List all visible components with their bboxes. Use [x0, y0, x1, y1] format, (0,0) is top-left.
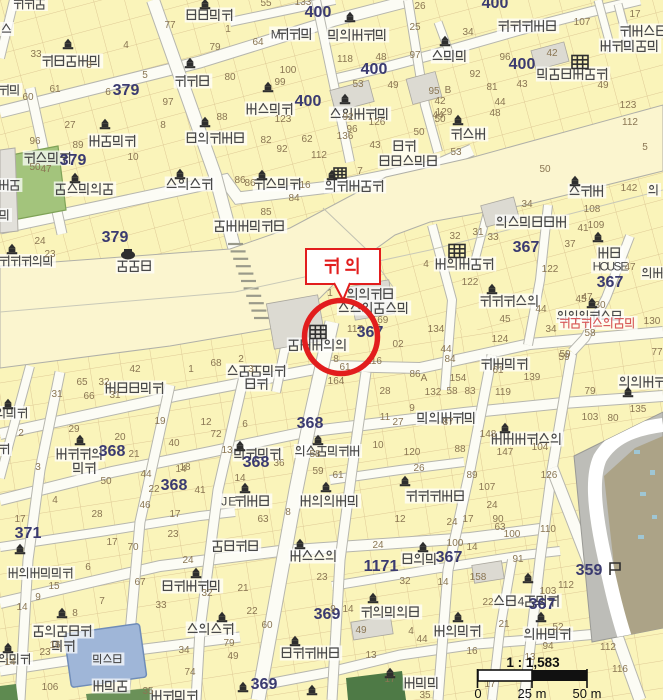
svg-text:84: 84	[288, 193, 300, 204]
svg-text:85: 85	[260, 207, 272, 218]
svg-text:58: 58	[446, 386, 458, 397]
svg-text:34: 34	[545, 324, 557, 335]
svg-text:58: 58	[584, 328, 596, 339]
svg-text:5: 5	[142, 70, 148, 81]
svg-text:80: 80	[607, 413, 619, 424]
svg-text:24: 24	[486, 500, 498, 511]
svg-text:6: 6	[85, 562, 91, 573]
svg-text:14: 14	[175, 464, 187, 475]
svg-text:1: 1	[225, 24, 231, 35]
svg-text:77: 77	[164, 20, 176, 31]
svg-text:136: 136	[337, 131, 354, 142]
svg-text:88: 88	[454, 444, 466, 455]
svg-text:369: 369	[314, 606, 341, 623]
svg-text:60: 60	[261, 620, 273, 631]
svg-text:1 : 1,583: 1 : 1,583	[506, 655, 560, 670]
svg-text:81: 81	[486, 82, 498, 93]
svg-text:62: 62	[301, 134, 313, 145]
svg-text:8: 8	[333, 354, 339, 365]
svg-text:116: 116	[612, 664, 628, 675]
svg-text:33: 33	[155, 600, 167, 611]
svg-text:74: 74	[184, 667, 196, 678]
svg-text:367: 367	[597, 274, 624, 291]
svg-text:8: 8	[160, 120, 166, 131]
svg-text:368: 368	[243, 454, 270, 471]
svg-text:48: 48	[489, 108, 501, 119]
svg-text:35: 35	[419, 690, 431, 700]
svg-text:77: 77	[651, 347, 663, 358]
svg-text:44: 44	[494, 97, 506, 108]
svg-text:17: 17	[462, 514, 474, 525]
svg-text:84: 84	[444, 354, 456, 365]
svg-text:368: 368	[297, 415, 324, 432]
svg-text:32: 32	[399, 576, 411, 587]
svg-text:48: 48	[375, 52, 387, 63]
svg-text:106: 106	[42, 682, 59, 693]
svg-text:400: 400	[509, 56, 536, 73]
svg-text:49: 49	[355, 625, 367, 636]
svg-text:22: 22	[482, 597, 494, 608]
svg-text:27: 27	[392, 417, 404, 428]
svg-text:120: 120	[404, 447, 421, 458]
svg-text:36: 36	[273, 458, 285, 469]
svg-text:132: 132	[425, 387, 442, 398]
svg-text:29: 29	[68, 424, 80, 435]
svg-text:104: 104	[532, 442, 549, 453]
svg-text:122: 122	[542, 264, 559, 275]
svg-text:400: 400	[482, 0, 509, 12]
svg-text:99: 99	[274, 77, 286, 88]
svg-text:14: 14	[466, 542, 478, 553]
svg-text:367: 367	[436, 549, 463, 566]
svg-text:3: 3	[248, 364, 254, 375]
svg-text:83: 83	[464, 386, 476, 397]
svg-text:1171: 1171	[364, 558, 399, 575]
svg-text:72: 72	[210, 429, 222, 440]
svg-text:53: 53	[352, 79, 364, 90]
svg-text:92: 92	[469, 69, 481, 80]
svg-text:1: 1	[188, 364, 194, 375]
svg-text:24: 24	[372, 540, 384, 551]
svg-text:24: 24	[34, 236, 46, 247]
svg-text:158: 158	[470, 572, 487, 583]
svg-text:33: 33	[30, 49, 42, 60]
svg-text:96: 96	[499, 52, 511, 63]
svg-text:10: 10	[127, 152, 139, 163]
svg-text:26: 26	[413, 463, 425, 474]
svg-text:92: 92	[276, 144, 288, 155]
svg-text:14: 14	[16, 602, 28, 613]
svg-text:112: 112	[600, 642, 616, 653]
svg-text:24: 24	[446, 517, 458, 528]
svg-text:4: 4	[423, 259, 429, 270]
svg-text:91: 91	[512, 554, 524, 565]
svg-text:21: 21	[498, 619, 510, 630]
svg-text:59: 59	[312, 466, 324, 477]
svg-text:61: 61	[492, 365, 504, 376]
svg-text:50: 50	[413, 127, 425, 138]
svg-text:369: 369	[251, 676, 278, 693]
svg-text:23: 23	[167, 529, 179, 540]
svg-text:24: 24	[182, 555, 194, 566]
svg-text:14: 14	[437, 577, 449, 588]
svg-text:379: 379	[102, 229, 129, 246]
svg-text:13: 13	[365, 650, 377, 661]
svg-text:35: 35	[142, 686, 154, 697]
svg-text:26: 26	[414, 1, 426, 12]
svg-text:15: 15	[48, 581, 60, 592]
svg-text:11: 11	[380, 412, 391, 423]
svg-text:4: 4	[408, 626, 414, 637]
svg-text:359: 359	[576, 562, 603, 579]
svg-text:50: 50	[100, 476, 112, 487]
svg-text:379: 379	[113, 82, 140, 99]
svg-text:9: 9	[409, 403, 415, 414]
svg-text:55: 55	[260, 0, 272, 9]
svg-text:8: 8	[285, 507, 291, 518]
svg-text:66: 66	[83, 391, 95, 402]
svg-text:49: 49	[227, 651, 239, 662]
svg-text:27: 27	[64, 120, 76, 131]
svg-text:107: 107	[574, 17, 591, 28]
svg-text:108: 108	[584, 204, 601, 215]
svg-text:21: 21	[237, 583, 249, 594]
svg-text:22: 22	[246, 606, 258, 617]
svg-text:50: 50	[29, 162, 41, 173]
svg-text:42: 42	[546, 48, 558, 59]
svg-text:63: 63	[257, 514, 269, 525]
svg-text:49: 49	[387, 80, 399, 91]
svg-text:1: 1	[327, 288, 333, 299]
svg-text:49: 49	[597, 80, 609, 91]
svg-text:80: 80	[224, 72, 236, 83]
svg-text:400: 400	[361, 61, 388, 78]
svg-text:63: 63	[494, 522, 506, 533]
svg-text:12: 12	[394, 514, 406, 525]
svg-text:10: 10	[372, 440, 384, 451]
svg-text:16: 16	[466, 646, 478, 657]
svg-text:28: 28	[379, 386, 391, 397]
svg-text:164: 164	[328, 376, 345, 387]
svg-text:20: 20	[114, 432, 126, 443]
svg-text:4: 4	[52, 495, 58, 506]
svg-text:0: 0	[474, 686, 481, 700]
svg-text:65: 65	[76, 377, 88, 388]
svg-text:3: 3	[86, 60, 92, 71]
svg-text:379: 379	[60, 152, 87, 169]
svg-text:122: 122	[462, 277, 479, 288]
svg-text:59: 59	[558, 352, 570, 363]
svg-text:6: 6	[242, 419, 248, 430]
svg-text:E: E	[228, 494, 236, 508]
svg-text:32: 32	[201, 588, 213, 599]
svg-text:42: 42	[434, 96, 446, 107]
svg-text:154: 154	[450, 373, 467, 384]
svg-text:17: 17	[106, 537, 118, 548]
svg-text:123: 123	[620, 100, 637, 111]
svg-text:94: 94	[542, 641, 554, 652]
svg-text:52: 52	[552, 622, 564, 633]
svg-text:42: 42	[129, 364, 141, 375]
svg-text:6: 6	[105, 87, 111, 98]
svg-text:32: 32	[98, 377, 110, 388]
svg-text:123: 123	[275, 114, 292, 125]
svg-text:45: 45	[499, 314, 511, 325]
svg-text:147: 147	[497, 447, 514, 458]
svg-text:16: 16	[299, 180, 311, 191]
svg-text:368: 368	[99, 443, 126, 460]
svg-text:3: 3	[35, 462, 41, 473]
svg-text:97: 97	[409, 50, 421, 61]
svg-text:14: 14	[234, 473, 246, 484]
svg-text:19: 19	[154, 416, 166, 427]
svg-text:139: 139	[524, 372, 541, 383]
svg-text:135: 135	[630, 404, 647, 415]
svg-text:70: 70	[127, 542, 139, 553]
svg-text:28: 28	[91, 509, 103, 520]
svg-text:64: 64	[252, 37, 264, 48]
svg-text:13: 13	[221, 445, 233, 456]
svg-text:112: 112	[622, 117, 638, 128]
svg-text:44: 44	[140, 469, 152, 480]
svg-text:58: 58	[309, 449, 321, 460]
svg-text:33: 33	[487, 232, 499, 243]
svg-text:34: 34	[521, 199, 533, 210]
svg-text:50: 50	[434, 114, 446, 125]
svg-text:34: 34	[178, 645, 190, 656]
svg-text:34: 34	[462, 27, 474, 38]
svg-text:12: 12	[200, 417, 212, 428]
svg-text:100: 100	[504, 529, 521, 540]
svg-text:112: 112	[558, 580, 574, 591]
svg-text:31: 31	[51, 389, 63, 400]
svg-text:89: 89	[72, 140, 84, 151]
svg-text:124: 124	[492, 334, 509, 345]
svg-text:118: 118	[337, 54, 353, 65]
svg-text:44: 44	[416, 634, 428, 645]
svg-text:53: 53	[450, 147, 462, 158]
svg-text:92: 92	[342, 112, 354, 123]
svg-text:367: 367	[529, 596, 556, 613]
svg-text:7: 7	[357, 166, 363, 177]
svg-text:117: 117	[347, 324, 363, 335]
svg-text:109: 109	[588, 220, 605, 231]
svg-text:B: B	[445, 85, 452, 96]
svg-text:96: 96	[29, 136, 41, 147]
svg-text:7: 7	[99, 596, 105, 607]
svg-text:14: 14	[342, 604, 354, 615]
svg-text:22: 22	[148, 484, 160, 495]
svg-text:133: 133	[295, 0, 312, 8]
svg-text:87: 87	[442, 417, 454, 428]
svg-text:89: 89	[466, 470, 478, 481]
svg-text:100: 100	[447, 538, 464, 549]
svg-text:60: 60	[22, 92, 34, 103]
svg-text:4: 4	[518, 594, 525, 608]
svg-text:86: 86	[409, 369, 421, 380]
svg-text:25 m: 25 m	[518, 686, 547, 700]
svg-text:41: 41	[577, 223, 589, 234]
svg-text:88: 88	[216, 112, 228, 123]
svg-text:107: 107	[479, 482, 496, 493]
svg-text:16: 16	[49, 640, 61, 651]
svg-text:23: 23	[44, 249, 56, 260]
svg-text:97: 97	[162, 97, 174, 108]
svg-text:9: 9	[35, 592, 41, 603]
svg-text:50 m: 50 m	[573, 686, 602, 700]
svg-text:142: 142	[621, 183, 638, 194]
svg-text:02: 02	[392, 339, 404, 350]
svg-text:50: 50	[539, 164, 551, 175]
svg-text:A: A	[421, 373, 428, 384]
svg-text:371: 371	[15, 525, 42, 542]
svg-text:4: 4	[123, 40, 129, 51]
svg-text:25: 25	[409, 22, 421, 33]
svg-text:31: 31	[472, 227, 484, 238]
svg-text:367: 367	[513, 239, 540, 256]
svg-text:148: 148	[480, 429, 497, 440]
svg-text:44: 44	[535, 304, 547, 315]
svg-text:103: 103	[540, 586, 557, 597]
svg-text:61: 61	[49, 84, 61, 95]
svg-text:400: 400	[295, 93, 322, 110]
svg-text:43: 43	[369, 140, 381, 151]
svg-text:130: 130	[644, 316, 661, 327]
svg-text:8: 8	[72, 608, 78, 619]
svg-text:30: 30	[594, 300, 606, 311]
svg-text:119: 119	[495, 387, 511, 398]
svg-text:100: 100	[280, 65, 297, 76]
svg-text:2: 2	[18, 428, 24, 439]
svg-text:31: 31	[109, 390, 121, 401]
svg-text:J: J	[221, 494, 227, 508]
svg-text:21: 21	[128, 449, 140, 460]
svg-text:103: 103	[582, 412, 599, 423]
svg-text:41: 41	[194, 485, 206, 496]
svg-text:47: 47	[624, 262, 636, 273]
svg-text:5: 5	[642, 142, 648, 153]
svg-text:86: 86	[244, 178, 256, 189]
svg-text:47: 47	[40, 164, 52, 175]
svg-text:17: 17	[629, 9, 641, 20]
svg-text:82: 82	[260, 135, 272, 146]
svg-text:32: 32	[449, 231, 461, 242]
svg-text:67: 67	[134, 577, 146, 588]
svg-text:14: 14	[4, 657, 16, 668]
svg-text:61: 61	[332, 470, 344, 481]
svg-text:2: 2	[238, 354, 244, 365]
svg-text:126: 126	[369, 117, 386, 128]
svg-text:17: 17	[14, 514, 26, 525]
svg-text:43: 43	[516, 79, 528, 90]
svg-text:126: 126	[541, 470, 558, 481]
svg-text:68: 68	[210, 358, 222, 369]
svg-text:23: 23	[316, 572, 328, 583]
svg-text:134: 134	[428, 324, 445, 335]
svg-text:40: 40	[168, 438, 180, 449]
svg-text:17: 17	[169, 509, 181, 520]
svg-text:79: 79	[223, 638, 235, 649]
svg-text:368: 368	[161, 477, 188, 494]
svg-text:46: 46	[139, 500, 151, 511]
svg-text:9: 9	[330, 604, 336, 615]
svg-text:37: 37	[564, 239, 576, 250]
svg-text:79: 79	[584, 386, 596, 397]
svg-text:110: 110	[540, 524, 556, 535]
svg-text:112: 112	[311, 150, 327, 161]
svg-text:79: 79	[209, 42, 221, 53]
